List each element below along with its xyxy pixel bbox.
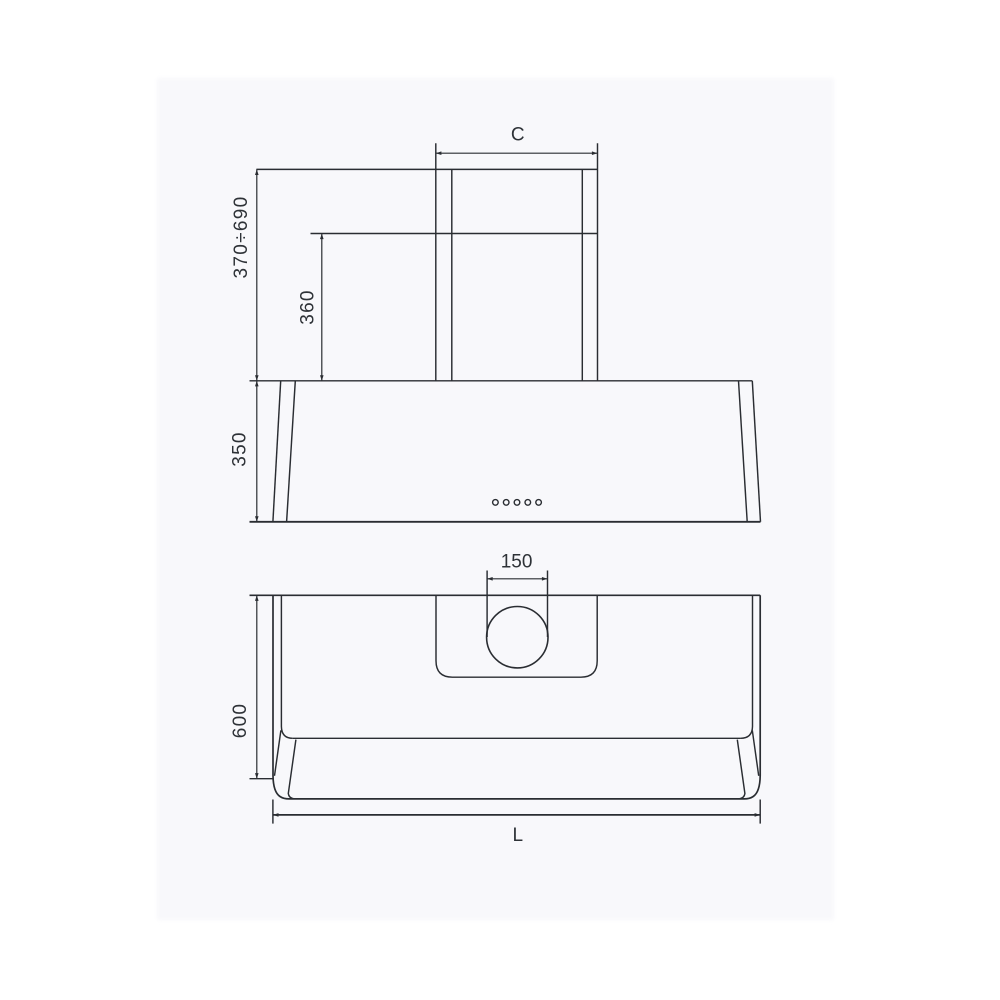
svg-text:350: 350 — [229, 431, 250, 467]
svg-text:C: C — [511, 125, 525, 146]
svg-text:150: 150 — [501, 552, 533, 573]
svg-text:600: 600 — [230, 703, 251, 739]
svg-text:370÷690: 370÷690 — [231, 196, 252, 279]
svg-text:L: L — [513, 825, 524, 846]
svg-text:360: 360 — [298, 289, 319, 325]
